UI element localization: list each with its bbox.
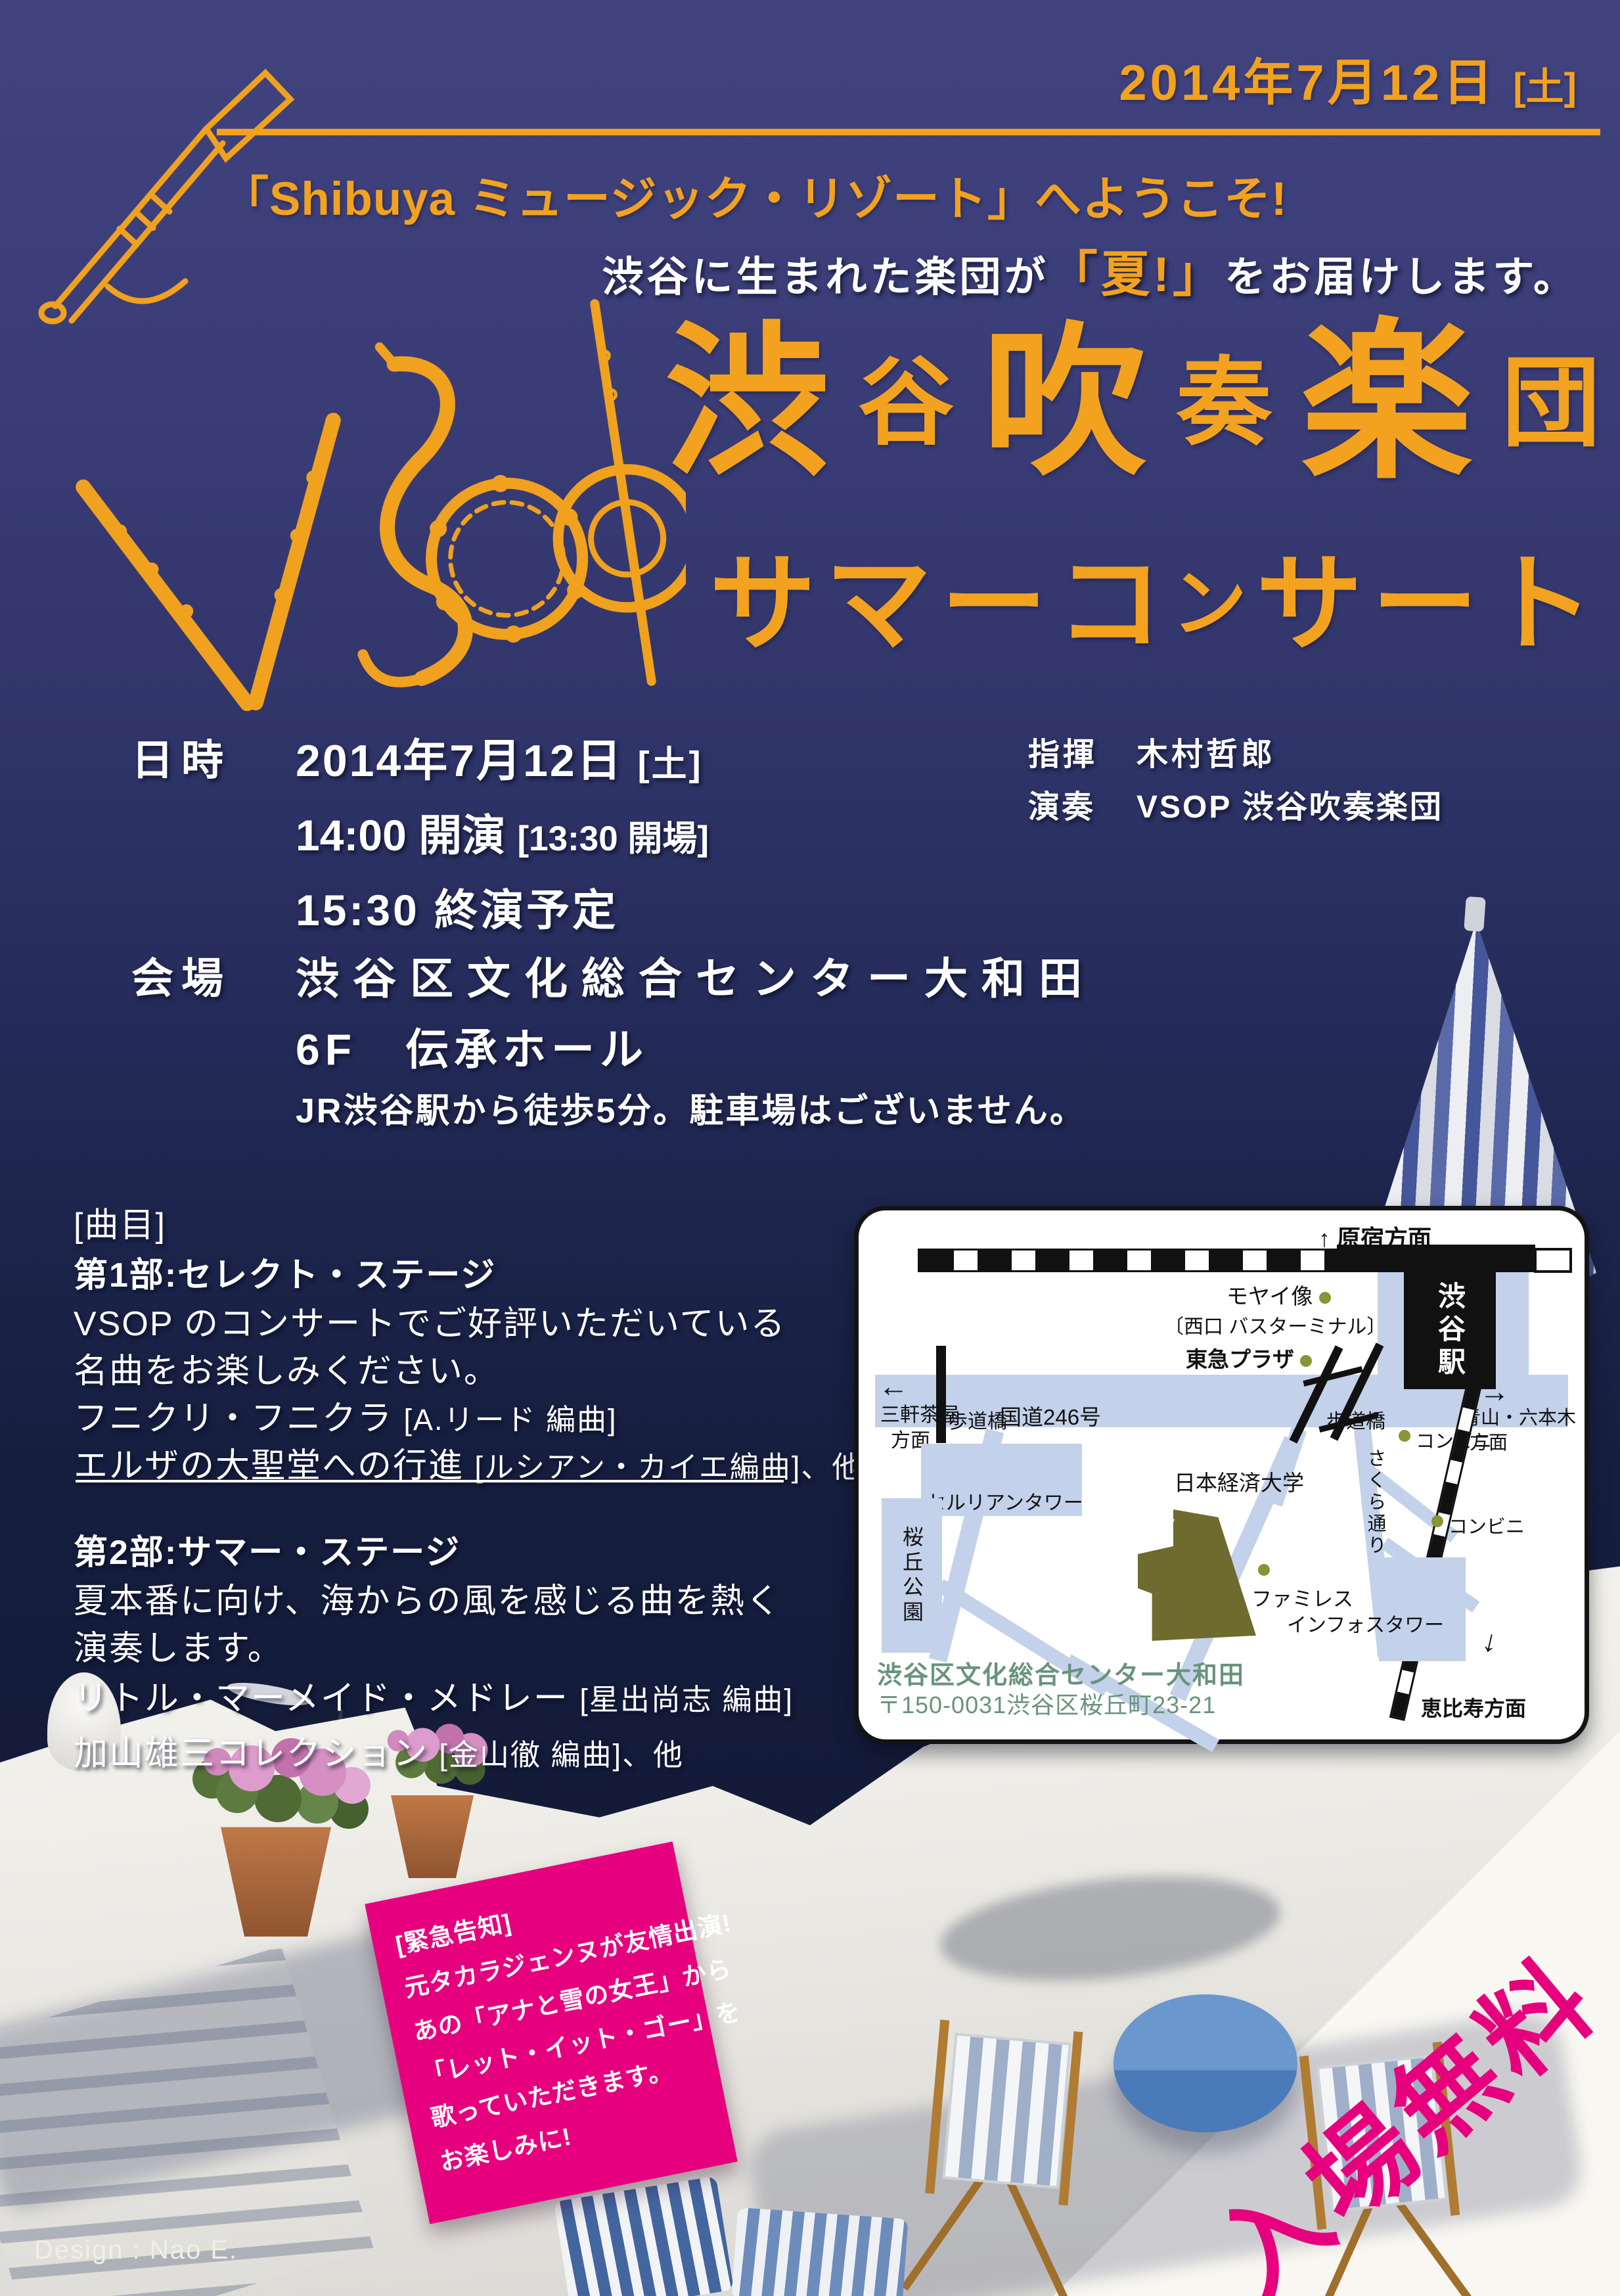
map-label-moyai: モヤイ像 [1226,1279,1331,1310]
tagline-highlight: 「夏!」 [1049,247,1225,302]
program-part2-desc: 演奏します。 [74,1620,283,1670]
arrow-left-icon: ← [878,1368,909,1404]
poi-dot [1319,1292,1331,1304]
start-open-time: 14:00 開演 [13:30 開場] [296,800,709,863]
map-caption-venue-name: 渋谷区文化総合センター大和田 [877,1655,1245,1691]
map-caption-address: 〒150-0031渋谷区桜丘町23-21 [877,1686,1216,1720]
map-label-route246: 国道246号 [1000,1400,1101,1431]
map-label-west-exit: 〔西口 バスターミナル〕 [1164,1310,1386,1339]
detail-date: 2014年7月12日 [296,736,623,786]
vsop-instruments-illustration [9,11,686,733]
blue-bistro-table [1114,1994,1297,2132]
map-label-famiresu: ファミレス [1251,1582,1353,1612]
title-char: サ [1256,551,1362,658]
program-piece: 加山雄三コレクション [金山徹 編曲]、他 [74,1726,684,1775]
title-char: ト [1487,551,1594,658]
datetime-label: 日時 [131,727,231,787]
piece-arranger: [星出尚志 編曲] [579,1683,794,1716]
performer-label: 演奏 [1028,781,1095,827]
tagline: 渋谷に生まれた楽団が「夏!」をお届けします。 [602,235,1578,306]
start-time: 14:00 開演 [296,811,505,860]
station-platform-block [1337,1245,1535,1272]
program-piece: リトル・マーメイド・メドレー [星出尚志 編曲] [74,1670,794,1720]
piece-name: リトル・マーメイド・メドレー [74,1680,569,1718]
venue-label: 会場 [131,945,231,1005]
letter-v-clarinets [79,421,357,716]
striped-deck-chair [731,2207,908,2296]
access-map-card: ↑ 原宿方面 渋谷駅 モヤイ像 〔西口 バスターミナル〕 東急プラザ ← 三軒茶… [854,1206,1589,1744]
end-time: 15:30 終演予定 [296,875,618,938]
design-credit: Design : Nao E. [34,2236,238,2265]
datetime-value: 2014年7月12日 [土] [296,724,703,789]
arrow-right-icon: → [1479,1373,1510,1409]
sakuragaoka-park-block: 桜丘公園 [882,1498,942,1653]
conductor-label: 指揮 [1028,728,1098,774]
map-label-footbridge-left: 歩道橋 [948,1405,1007,1434]
title-char: ー [1372,551,1478,658]
arrow-down-icon: ↓ [1479,1622,1502,1660]
chair-canvas [942,2032,1071,2189]
title-char: 奏 [1176,355,1272,451]
poi-dot [1399,1430,1410,1442]
striped-director-chair [911,2031,1086,2296]
piece-arranger: [ルシアン・カイエ編曲]、他 [474,1450,863,1484]
title-char: サ [709,551,816,658]
beach-parasol-cap [1464,896,1486,932]
program-piece: フニクリ・フニクラ [A.リード 編曲] [74,1390,618,1440]
poi-dot [1258,1564,1270,1576]
letter-p-horn-flute [538,297,686,689]
park-name: 桜丘公園 [897,1526,927,1626]
map-label-tokyu-plaza: 東急プラザ [1186,1342,1312,1373]
program-part2-title: 第2部:サマー・ステージ [74,1525,461,1574]
poi-dot [1300,1355,1312,1367]
title-char: ン [1172,567,1247,642]
piece-name: フニクリ・フニクラ [74,1400,393,1438]
tagline-post: をお届けします。 [1225,254,1578,300]
title-char: 渋 [665,321,829,485]
title-char: コ [1056,551,1163,658]
map-label-cerulean: セルリアンタワー [926,1486,1083,1515]
venue-entrance-arrow [1158,1519,1175,1539]
event-date: 2014年7月12日 [1119,55,1496,111]
program-divider-line [76,1480,784,1482]
map-label-ebisu: 恵比寿方面 [1421,1692,1526,1722]
title-char: 楽 [1301,317,1473,489]
tagline-pre: 渋谷に生まれた楽団が [602,254,1049,300]
program-part1-title: 第1部:セレクト・ステージ [74,1247,496,1297]
station-name: 渋谷駅 [1430,1281,1470,1380]
open-time: [13:30 開場] [517,819,709,858]
venue-access: JR渋谷駅から徒歩5分。駐車場はございません。 [296,1083,1086,1132]
title-char: ー [941,551,1047,658]
title-char: マ [825,551,932,658]
program-part2-desc: 夏本番に向け、海からの風を感じる曲を熱く [74,1573,781,1622]
title-char: 谷 [858,355,954,451]
map-label-info-tower: インフォスタワー [1287,1609,1444,1638]
piece-arranger: [A.リード 編曲] [403,1403,617,1436]
map-label-university: 日本経済大学 [1174,1465,1304,1497]
venue-floor: 6F 伝承ホール [296,1015,648,1078]
welcome-line: 「Shibuya ミュージック・リゾート」へようこそ! [222,162,1288,229]
map-label-conbini: コンビニ [1449,1511,1525,1539]
event-weekday: [土] [1513,66,1577,108]
arrow-up-icon: ↑ [1318,1225,1330,1252]
venue-name: 渋谷区文化総合センター大和田 [296,944,1096,1007]
conductor-name: 木村哲郎 [1136,728,1276,774]
urgent-announcement-box: [緊急告知] 元タカラジェンヌが友情出演! あの「アナと雪の女王」から 「レット… [365,1841,737,2224]
orange-divider-line [217,129,1600,135]
detail-weekday: [土] [638,745,703,784]
performer-name: VSOP 渋谷吹奏楽団 [1136,781,1443,827]
title-char: 団 [1502,354,1600,452]
main-title-line1: 渋 谷 吹 奏 楽 団 [665,308,1600,498]
map-label-conbini: コンビニ [1416,1426,1492,1454]
shibuya-station-block: 渋谷駅 [1404,1272,1496,1389]
main-title-line2: サ マ ー コ ン サ ー ト [709,545,1594,664]
jr-railway-line [918,1249,1342,1272]
map-label-footbridge-mid: 歩道橋 [1326,1405,1385,1434]
piece-name: 加山雄三コレクション [74,1735,428,1773]
railway-segment [1534,1248,1572,1273]
piece-arranger: [金山徹 編曲]、他 [439,1738,684,1772]
poi-dot [1431,1515,1443,1527]
program-part1-desc: 名曲をお楽しみください。 [74,1343,499,1392]
event-date-banner: 2014年7月12日 [土] [1119,42,1577,114]
program-heading: [曲目] [74,1197,166,1247]
program-part1-desc: VSOP のコンサートでご好評いただいている [74,1296,786,1345]
title-char: 吹 [983,321,1147,485]
concert-flyer-poster: 2014年7月12日 [土] 「Shibuya ミュージック・リゾート」へようこ… [0,0,1620,2296]
